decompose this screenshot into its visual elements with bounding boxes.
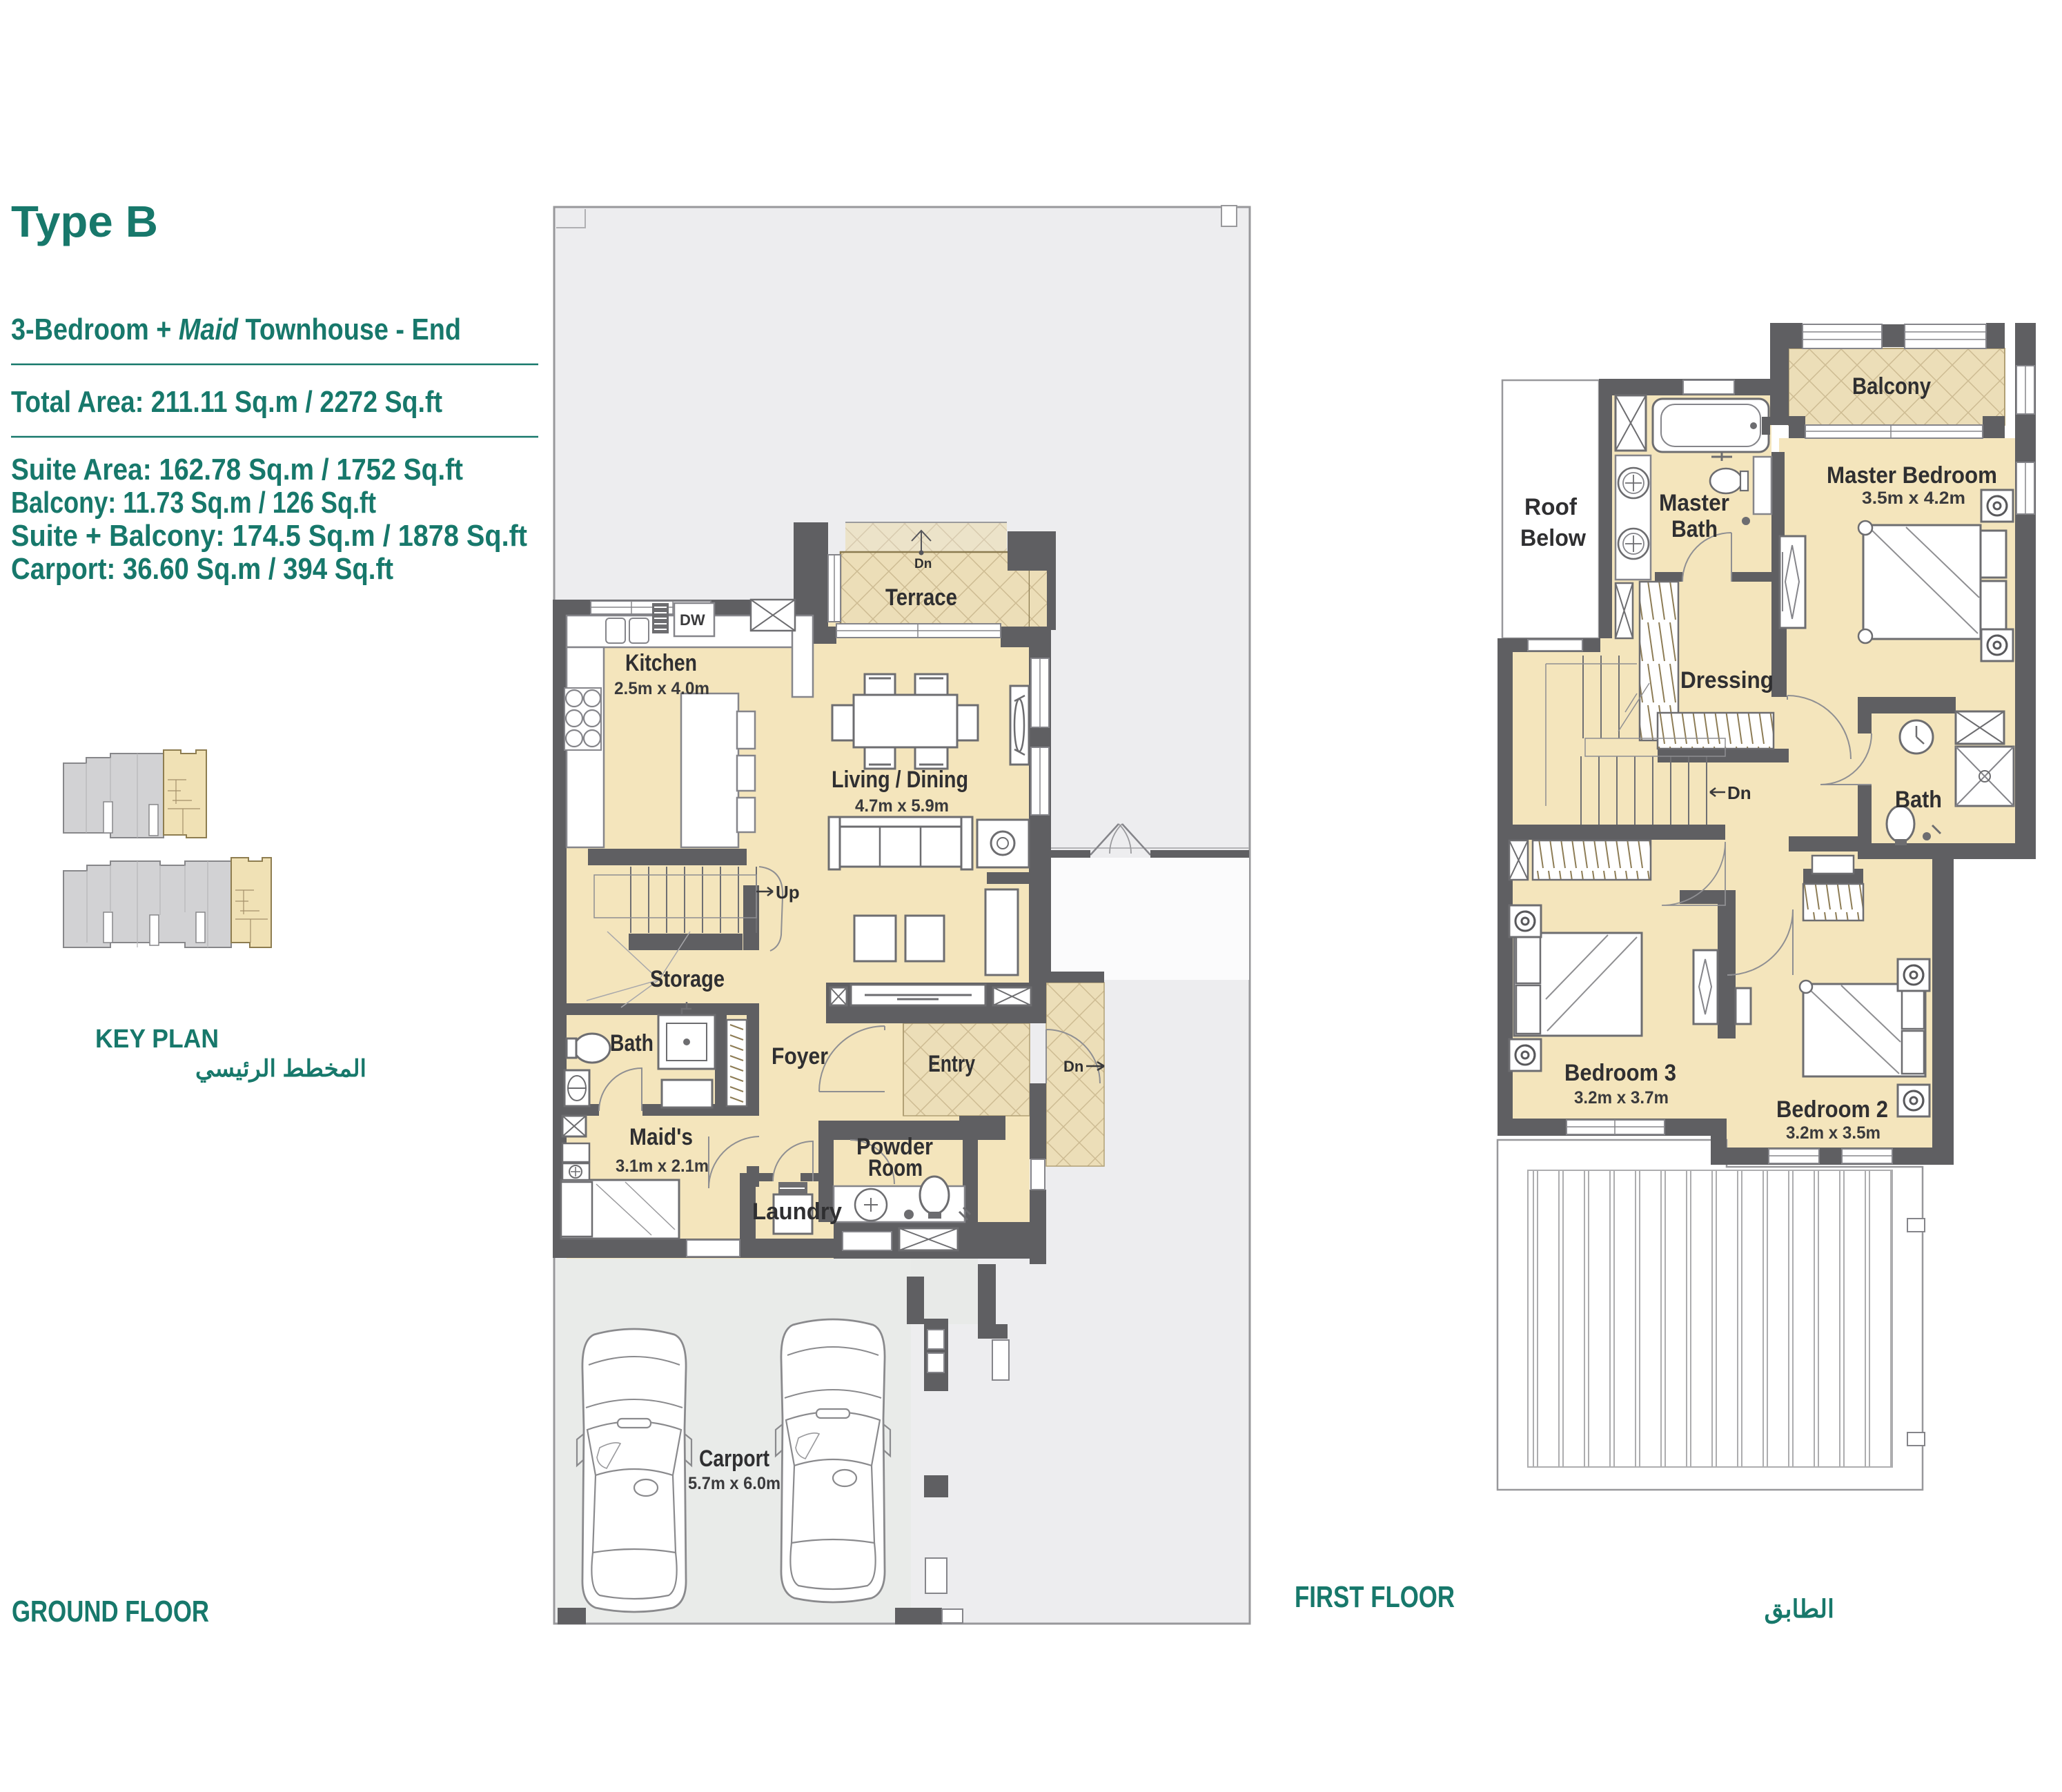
svg-text:Balcony: 11.73 Sq.m / 126 Sq.f: Balcony: 11.73 Sq.m / 126 Sq.ft: [11, 486, 376, 520]
svg-text:Carport: Carport: [699, 1446, 769, 1472]
svg-text:Bath: Bath: [1895, 787, 1942, 813]
svg-text:Bath: Bath: [1671, 516, 1718, 542]
svg-text:Entry: Entry: [928, 1051, 975, 1077]
svg-text:Total Area: 211.11 Sq.m / 2272: Total Area: 211.11 Sq.m / 2272 Sq.ft: [11, 385, 442, 419]
svg-text:Balcony: Balcony: [1852, 373, 1931, 400]
svg-text:5.7m x 6.0m: 5.7m x 6.0m: [688, 1474, 780, 1493]
svg-text:Room: Room: [868, 1155, 923, 1181]
svg-text:Terrace: Terrace: [885, 584, 957, 611]
svg-text:FIRST FLOOR: FIRST FLOOR: [1295, 1580, 1455, 1614]
svg-text:Bedroom 2: Bedroom 2: [1776, 1096, 1888, 1123]
svg-text:3.2m x 3.7m: 3.2m x 3.7m: [1574, 1088, 1669, 1107]
svg-text:Maid's: Maid's: [629, 1124, 693, 1150]
svg-text:3.5m x 4.2m: 3.5m x 4.2m: [1862, 489, 1965, 508]
svg-text:Bath: Bath: [610, 1030, 654, 1056]
svg-text:Master: Master: [1659, 490, 1729, 516]
svg-text:Suite + Balcony: 174.5 Sq.m /: Suite + Balcony: 174.5 Sq.m / 1878 Sq.ft: [11, 519, 527, 553]
svg-text:3-Bedroom + Maid Townhouse - E: 3-Bedroom + Maid Townhouse - End: [11, 313, 461, 346]
svg-text:Type B: Type B: [11, 197, 158, 246]
svg-text:GROUND FLOOR: GROUND FLOOR: [12, 1595, 209, 1628]
svg-text:المخطط الرئيسي: المخطط الرئيسي: [195, 1056, 366, 1083]
svg-text:DW: DW: [680, 611, 705, 629]
svg-text:Kitchen: Kitchen: [625, 650, 697, 676]
svg-text:Storage: Storage: [650, 966, 725, 992]
svg-text:Master Bedroom: Master Bedroom: [1827, 462, 1997, 489]
svg-text:Bedroom 3: Bedroom 3: [1564, 1060, 1676, 1086]
svg-text:3.1m x 2.1m: 3.1m x 2.1m: [616, 1156, 709, 1176]
svg-text:2.5m x 4.0m: 2.5m x 4.0m: [614, 679, 709, 698]
svg-text:Roof: Roof: [1524, 494, 1578, 520]
svg-text:الطابق: الطابق: [1764, 1595, 1834, 1624]
svg-text:Foyer: Foyer: [772, 1043, 828, 1070]
svg-text:Dressing: Dressing: [1680, 667, 1774, 693]
svg-text:Up: Up: [776, 882, 800, 903]
svg-text:KEY PLAN: KEY PLAN: [95, 1025, 219, 1054]
svg-text:Dn: Dn: [1063, 1058, 1083, 1075]
svg-text:Dn: Dn: [914, 557, 932, 571]
svg-text:Living / Dining: Living / Dining: [832, 767, 968, 793]
svg-text:4.7m x 5.9m: 4.7m x 5.9m: [855, 796, 949, 816]
svg-text:Suite Area: 162.78 Sq.m / 1752: Suite Area: 162.78 Sq.m / 1752 Sq.ft: [11, 453, 463, 486]
svg-text:Laundry: Laundry: [752, 1199, 842, 1225]
svg-text:Below: Below: [1520, 525, 1587, 551]
svg-text:3.2m x 3.5m: 3.2m x 3.5m: [1786, 1123, 1881, 1143]
svg-text:Carport: 36.60 Sq.m / 394 Sq.f: Carport: 36.60 Sq.m / 394 Sq.ft: [11, 552, 393, 586]
svg-text:Dn: Dn: [1727, 782, 1751, 803]
